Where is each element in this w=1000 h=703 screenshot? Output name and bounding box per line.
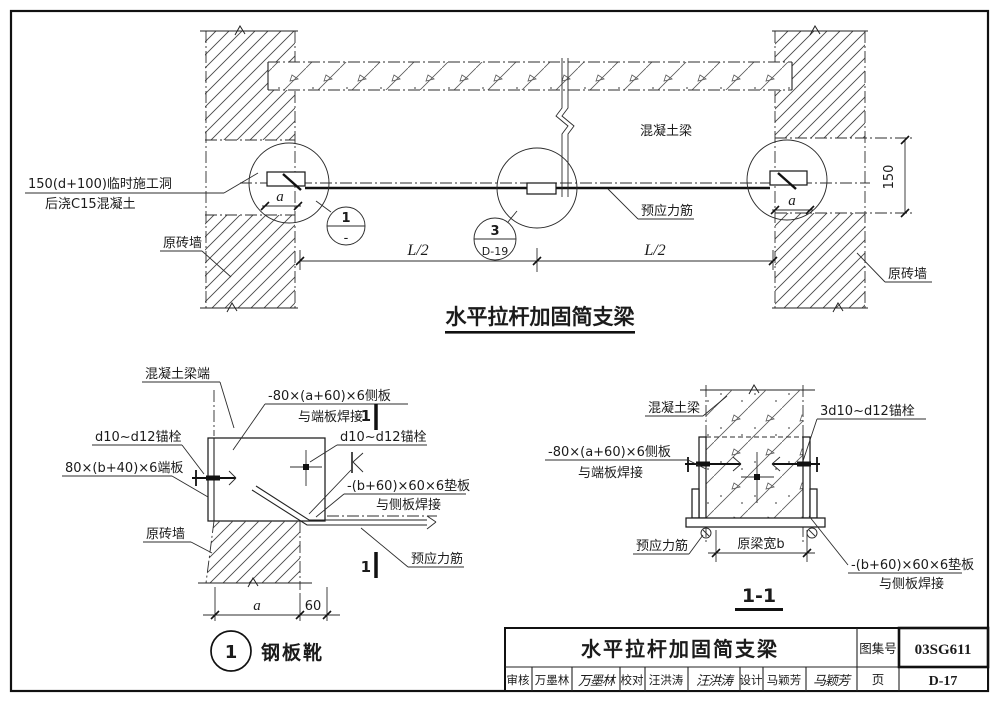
check-label: 校对 [621, 673, 644, 687]
pad-plate-label1: -(b+60)×60×6垫板 [347, 478, 470, 494]
pad-plate-label2: 与侧板焊接 [376, 497, 441, 513]
dim-l2-right: L/2 [643, 242, 665, 259]
page-label: 页 [872, 672, 885, 687]
drawing-sheet: 1 - 3 D-19 L/2 L/2 a [0, 0, 1000, 703]
section-mark-number: 1 [361, 558, 371, 576]
side-plate-label2: 与端板焊接 [298, 409, 363, 425]
tendon-label: 预应力筋 [411, 551, 463, 567]
side-plate [208, 438, 325, 521]
dim-a: a [276, 189, 284, 205]
anchor-label: d10~d12锚栓 [340, 430, 426, 445]
pad-plate-label1: -(b+60)×60×6垫板 [851, 557, 974, 573]
pad-plate [686, 518, 825, 527]
detail-number: 1 [225, 642, 238, 663]
anchors-label: 3d10~d12锚栓 [820, 404, 915, 419]
reviewer-name: 万墨林 [535, 673, 570, 687]
wall-label: 原砖墙 [888, 267, 927, 282]
reviewer-signature: 万墨林 [578, 674, 617, 689]
wall-label: 原砖墙 [146, 527, 185, 542]
temp-opening-line2: 后浇C15混凝土 [45, 196, 136, 212]
dim-l2-left: L/2 [406, 242, 428, 259]
left-steel-shoe [267, 172, 305, 186]
main-title-text: 水平拉杆加固简支梁 [446, 305, 636, 329]
dim-150-text: 150 [882, 165, 897, 190]
detail-ref-number: 1 [341, 211, 350, 226]
side-plate-label1: -80×(a+60)×6侧板 [268, 389, 391, 404]
right-stub-plate [810, 489, 817, 518]
page-number: D-17 [929, 674, 958, 689]
detail-ref-page: D-19 [482, 245, 508, 258]
temp-opening-line1: 150(d+100)临时施工洞 [28, 177, 172, 192]
wall-label: 原砖墙 [163, 236, 202, 251]
detail-wall [198, 521, 312, 590]
left-stub-plate [692, 489, 699, 518]
review-label: 审核 [507, 673, 530, 687]
design-label: 设计 [740, 673, 763, 687]
tendon-label: 预应力筋 [636, 538, 688, 554]
anchor-label: d10~d12锚栓 [95, 430, 181, 445]
turnbuckle [527, 183, 556, 194]
designer-signature: 马颖芳 [813, 674, 852, 689]
section-mark-number: 1 [361, 407, 371, 425]
left-side-plate [699, 437, 706, 518]
tendon-label: 预应力筋 [641, 203, 693, 219]
concrete-beam-section [706, 390, 803, 518]
designer-name: 马颖芳 [767, 673, 802, 687]
floor-slab [268, 62, 792, 90]
dim-60: 60 [305, 599, 322, 614]
beam-label: 混凝土梁 [640, 123, 692, 139]
detail-title: 钢板靴 [261, 641, 324, 664]
titleblock-title: 水平拉杆加固简支梁 [581, 637, 779, 661]
beam-label: 混凝土梁 [648, 400, 700, 416]
atlas-label: 图集号 [859, 641, 897, 656]
pad-plate-label2: 与侧板焊接 [879, 576, 944, 592]
end-plate-label: 80×(b+40)×6端板 [65, 461, 183, 476]
detail-ref-page: - [344, 231, 349, 246]
atlas-number: 03SG611 [915, 642, 972, 658]
checker-name: 汪洪涛 [649, 673, 684, 687]
dim-a: a [788, 193, 796, 209]
side-plate-label1: -80×(a+60)×6侧板 [548, 445, 671, 460]
section-title: 1-1 [742, 585, 776, 607]
detail-ref-number: 3 [490, 224, 499, 239]
side-plate-label2: 与端板焊接 [578, 465, 643, 481]
beam-width-label: 原梁宽b [737, 536, 784, 552]
dim-a: a [253, 598, 261, 614]
beam-end-label: 混凝土梁端 [145, 366, 210, 382]
checker-signature: 汪洪涛 [696, 674, 735, 689]
title-block: 水平拉杆加固简支梁 图集号 03SG611 页 D-17 审核 万墨林 万墨林 … [505, 628, 988, 691]
